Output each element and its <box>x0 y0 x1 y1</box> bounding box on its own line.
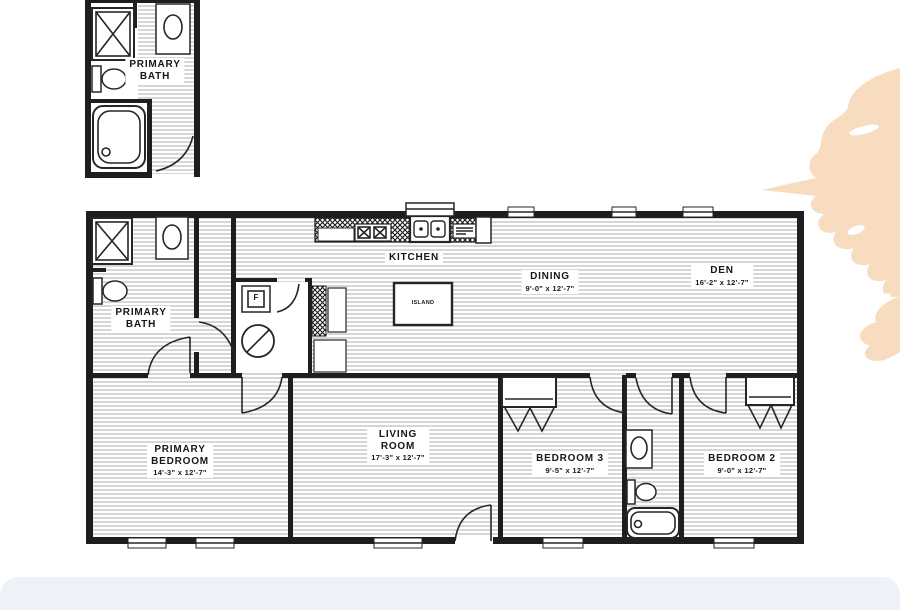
utility-closet <box>236 282 308 373</box>
floor-plan-page: PRIMARY BATH PRIMARY BATH KITCHEN ISLAND… <box>0 0 900 610</box>
shower-icon <box>92 8 134 60</box>
shower-icon <box>92 218 132 264</box>
room-label-bedroom-2: BEDROOM 2 9'-0" x 12'-7" <box>704 452 780 476</box>
room-label-dining: DINING 9'-0" x 12'-7" <box>521 270 578 294</box>
pantry <box>312 286 346 372</box>
room-label-primary-bedroom: PRIMARY BEDROOM 14'-3" x 12'-7" <box>147 443 213 478</box>
room-label-den: DEN 16'-2" x 12'-7" <box>691 264 753 288</box>
furnace-label: F <box>254 293 259 302</box>
inset-bath-plan <box>85 0 200 178</box>
floor-plan-graphic <box>0 0 900 610</box>
sink-icon <box>156 217 188 259</box>
main-plan <box>90 203 801 548</box>
kitchen-sink-icon <box>410 216 450 242</box>
kitchen-counter <box>315 203 491 243</box>
toilet-icon <box>92 66 126 92</box>
room-label-bedroom-3: BEDROOM 3 9'-5" x 12'-7" <box>532 452 608 476</box>
range-icon <box>355 224 391 241</box>
room-label-primary-bath: PRIMARY BATH <box>111 306 170 331</box>
room-label-island: ISLAND <box>412 300 435 306</box>
room-label-inset-primary-bath: PRIMARY BATH <box>125 58 184 83</box>
sink-icon <box>626 430 652 468</box>
bathtub-icon <box>93 106 145 168</box>
dishwasher-icon <box>453 224 476 238</box>
sink-icon <box>156 4 190 54</box>
kitchen-window <box>406 203 454 216</box>
room-label-kitchen: KITCHEN <box>385 251 443 265</box>
water-heater-icon <box>242 325 274 357</box>
bathtub-icon <box>627 508 679 538</box>
room-label-living-room: LIVING ROOM 17'-3" x 12'-7" <box>367 428 429 463</box>
